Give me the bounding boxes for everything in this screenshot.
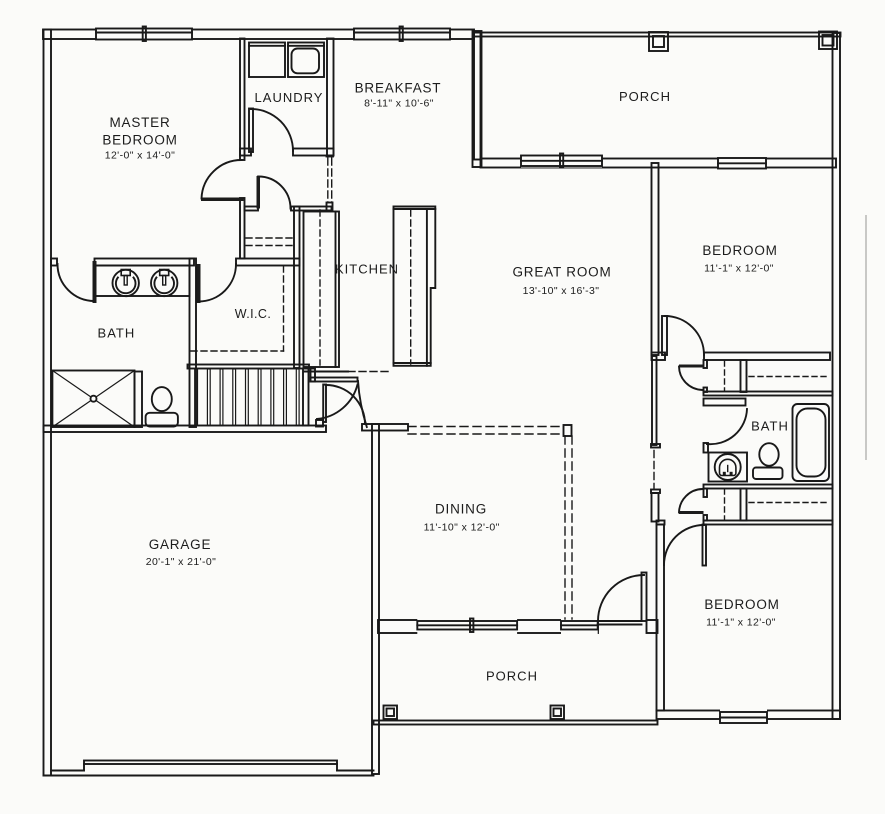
svg-text:20'-1" x 21'-0": 20'-1" x 21'-0" <box>146 556 217 568</box>
svg-text:BEDROOM: BEDROOM <box>102 133 177 148</box>
svg-text:11'-1" x 12'-0": 11'-1" x 12'-0" <box>704 263 774 275</box>
svg-text:PORCH: PORCH <box>486 669 538 684</box>
svg-text:11'-10" x 12'-0": 11'-10" x 12'-0" <box>424 522 500 534</box>
svg-text:PORCH: PORCH <box>619 89 671 104</box>
svg-text:BEDROOM: BEDROOM <box>702 243 777 258</box>
svg-text:DINING: DINING <box>435 502 487 517</box>
svg-text:11'-1" x 12'-0": 11'-1" x 12'-0" <box>706 617 776 629</box>
svg-text:BATH: BATH <box>98 326 136 341</box>
svg-text:12'-0" x 14'-0": 12'-0" x 14'-0" <box>105 150 176 162</box>
svg-text:MASTER: MASTER <box>109 115 170 130</box>
svg-text:LAUNDRY: LAUNDRY <box>255 90 324 105</box>
svg-text:GREAT ROOM: GREAT ROOM <box>512 265 611 280</box>
svg-text:GARAGE: GARAGE <box>149 537 212 552</box>
svg-text:KITCHEN: KITCHEN <box>335 262 399 277</box>
svg-text:BREAKFAST: BREAKFAST <box>355 81 442 96</box>
svg-text:BEDROOM: BEDROOM <box>704 597 779 612</box>
svg-text:13'-10" x 16'-3": 13'-10" x 16'-3" <box>523 285 600 297</box>
svg-text:8'-11" x 10'-6": 8'-11" x 10'-6" <box>364 98 434 110</box>
svg-text:W.I.C.: W.I.C. <box>235 307 271 321</box>
svg-text:BATH: BATH <box>751 419 789 434</box>
